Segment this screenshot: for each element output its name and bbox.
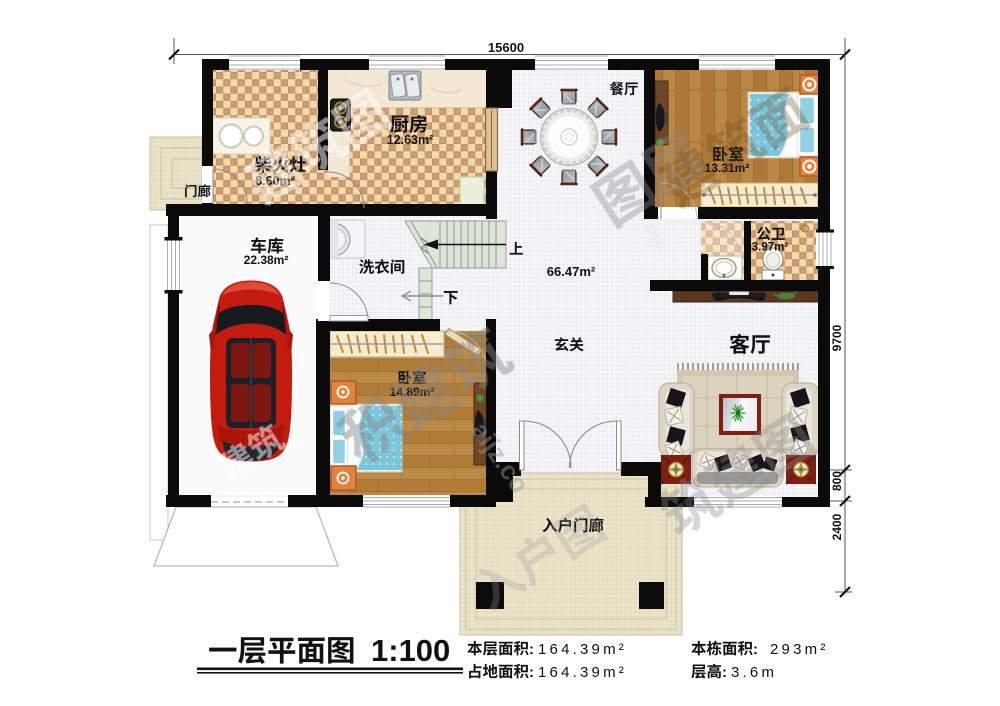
svg-text:164.39m²: 164.39m²	[538, 641, 627, 658]
svg-text::: :	[753, 641, 758, 658]
svg-text:293m²: 293m²	[770, 641, 829, 658]
svg-text:1:100: 1:100	[371, 633, 450, 668]
svg-text:15600: 15600	[488, 40, 524, 55]
svg-text::: :	[722, 664, 727, 681]
svg-text:2400: 2400	[830, 513, 844, 540]
svg-text::: :	[529, 664, 534, 681]
svg-text:800: 800	[830, 471, 844, 491]
svg-text:12.63m²: 12.63m²	[387, 133, 434, 147]
svg-text:22.38m²: 22.38m²	[244, 253, 289, 267]
svg-text::: :	[529, 641, 534, 658]
svg-text:3.97m²: 3.97m²	[752, 242, 789, 254]
svg-text:164.39m²: 164.39m²	[538, 664, 627, 681]
svg-text:9700: 9700	[830, 324, 844, 351]
svg-text:66.47m²: 66.47m²	[547, 264, 596, 279]
svg-text:3.6m: 3.6m	[731, 664, 777, 681]
